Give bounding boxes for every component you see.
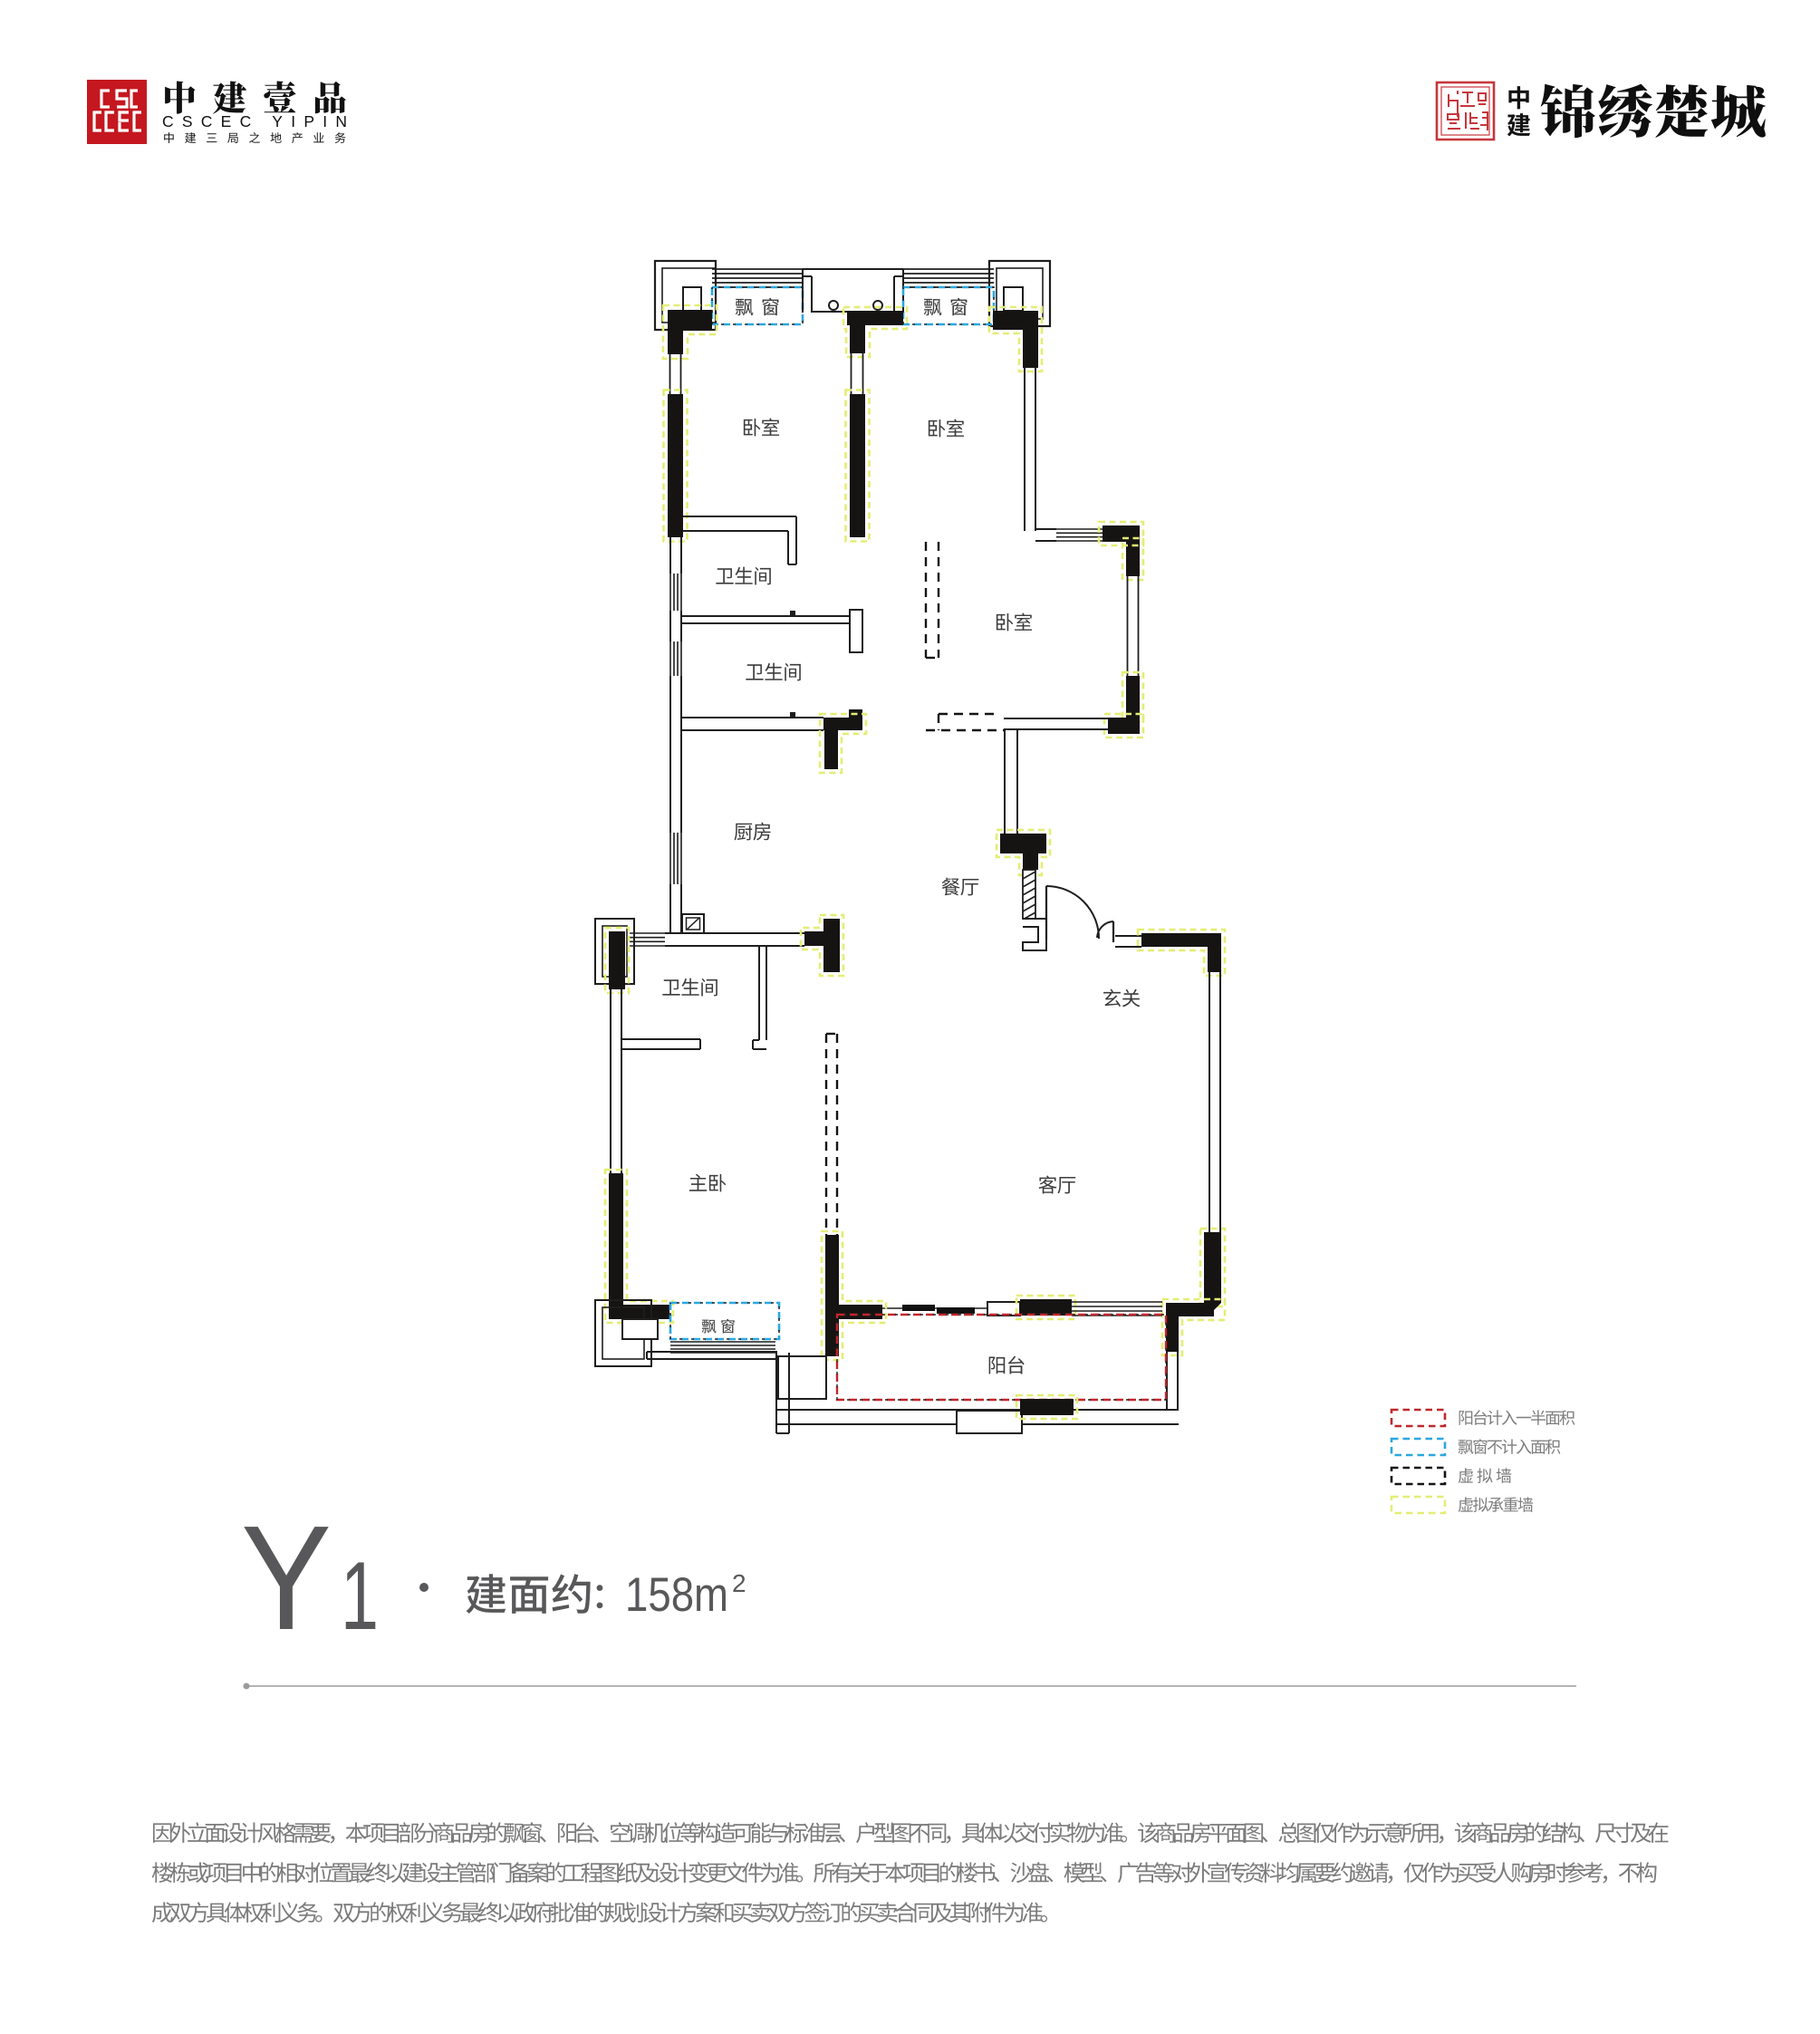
- svg-text:Y: Y: [241, 1495, 332, 1661]
- svg-text:1: 1: [341, 1541, 379, 1650]
- svg-text:158m: 158m: [625, 1568, 728, 1622]
- svg-text:2: 2: [732, 1569, 746, 1597]
